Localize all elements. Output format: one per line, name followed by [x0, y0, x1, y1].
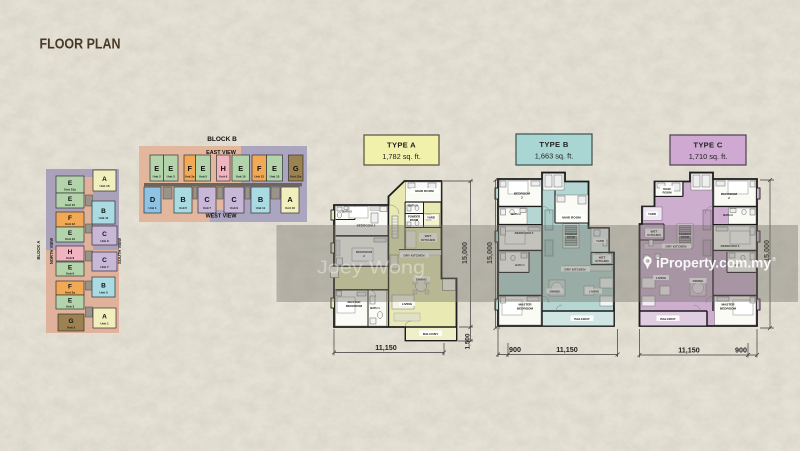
svg-text:TYPE A: TYPE A	[387, 141, 416, 150]
svg-text:E: E	[68, 180, 73, 187]
svg-text:YARD: YARD	[648, 212, 656, 216]
svg-text:MAID ROOM: MAID ROOM	[562, 216, 581, 220]
svg-text:H: H	[68, 249, 73, 256]
svg-text:C: C	[102, 231, 107, 238]
svg-text:900: 900	[509, 345, 521, 354]
svg-text:B: B	[258, 195, 263, 204]
svg-text:F: F	[257, 164, 262, 173]
svg-text:Unit 10: Unit 10	[236, 175, 246, 179]
svg-text:E: E	[201, 164, 206, 173]
svg-text:BALCONY: BALCONY	[574, 317, 590, 321]
svg-text:Unit 12: Unit 12	[254, 175, 264, 179]
svg-text:Unit 11: Unit 11	[99, 216, 109, 220]
svg-text:E: E	[154, 164, 159, 173]
svg-text:11,150: 11,150	[678, 346, 700, 355]
svg-text:WEST VIEW: WEST VIEW	[206, 214, 238, 220]
svg-text:Unit 1: Unit 1	[148, 206, 156, 210]
svg-text:1,500: 1,500	[465, 333, 472, 349]
svg-text:C: C	[204, 195, 210, 204]
svg-text:F: F	[68, 215, 72, 222]
svg-text:Unit 15a: Unit 15a	[64, 188, 76, 192]
svg-text:TYPE B: TYPE B	[539, 140, 568, 149]
svg-text:A: A	[102, 176, 107, 183]
svg-text:Unit 16: Unit 16	[99, 184, 109, 188]
svg-text:Unit 9: Unit 9	[230, 206, 238, 210]
svg-text:BATH 1: BATH 1	[370, 306, 380, 310]
svg-text:E: E	[238, 164, 243, 173]
svg-text:Unit 5: Unit 5	[199, 175, 207, 179]
svg-text:POWDER: POWDER	[408, 215, 420, 219]
svg-text:11,150: 11,150	[375, 343, 397, 352]
svg-text:NORTH VIEW: NORTH VIEW	[49, 238, 54, 264]
svg-text:E: E	[272, 164, 277, 173]
svg-text:Unit 5: Unit 5	[99, 291, 108, 295]
svg-text:E: E	[68, 298, 73, 305]
svg-text:Unit 5: Unit 5	[179, 206, 187, 210]
svg-text:G: G	[68, 318, 73, 325]
svg-text:BEDROOM: BEDROOM	[517, 307, 534, 311]
svg-text:Unit 10: Unit 10	[65, 237, 75, 241]
svg-text:Unit 15a: Unit 15a	[290, 175, 302, 179]
svg-text:BLOCK A: BLOCK A	[36, 241, 41, 260]
svg-text:Unit 3: Unit 3	[167, 175, 175, 179]
svg-text:BEDROOM: BEDROOM	[346, 304, 363, 308]
svg-text:Unit 11: Unit 11	[256, 206, 266, 210]
svg-text:iProperty.com.my: iProperty.com.my	[656, 255, 771, 271]
svg-text:BATH 2: BATH 2	[723, 213, 733, 217]
svg-text:H: H	[221, 164, 226, 173]
svg-text:FLOOR PLAN: FLOOR PLAN	[40, 36, 121, 53]
svg-text:BLOCK B: BLOCK B	[207, 136, 237, 143]
svg-text:F: F	[68, 284, 72, 291]
svg-text:®: ®	[772, 256, 776, 263]
svg-text:ROOM: ROOM	[410, 218, 419, 222]
svg-text:E: E	[68, 230, 73, 237]
svg-text:1,782 sq. ft.: 1,782 sq. ft.	[382, 152, 421, 161]
svg-text:BALCONY: BALCONY	[423, 332, 439, 336]
svg-text:Unit 15: Unit 15	[270, 175, 280, 179]
svg-text:TYPE C: TYPE C	[693, 141, 722, 150]
svg-text:C: C	[102, 257, 107, 264]
svg-text:E: E	[68, 265, 73, 272]
svg-text:Unit 3a: Unit 3a	[185, 175, 195, 179]
svg-text:LIVING: LIVING	[402, 302, 413, 306]
svg-text:Unit 12: Unit 12	[65, 222, 75, 226]
svg-text:B: B	[180, 195, 185, 204]
svg-text:F: F	[187, 164, 192, 173]
svg-text:Unit 16: Unit 16	[285, 206, 295, 210]
svg-text:BATH 5: BATH 5	[408, 204, 418, 208]
svg-text:E: E	[168, 164, 173, 173]
svg-text:2: 2	[521, 196, 523, 200]
svg-text:1,663 sq. ft.: 1,663 sq. ft.	[535, 152, 574, 161]
svg-text:BATH 2: BATH 2	[342, 210, 352, 214]
svg-text:E: E	[68, 196, 73, 203]
svg-text:1,710 sq. ft.: 1,710 sq. ft.	[689, 152, 728, 161]
svg-text:ROOM: ROOM	[663, 191, 673, 195]
svg-text:YARD: YARD	[427, 216, 435, 220]
svg-text:MAID ROOM: MAID ROOM	[415, 189, 434, 193]
svg-text:BEDROOM: BEDROOM	[720, 307, 737, 311]
svg-text:BATH 2: BATH 2	[511, 212, 521, 216]
svg-text:Unit 15: Unit 15	[65, 203, 75, 207]
svg-text:Unit 3a: Unit 3a	[65, 291, 75, 295]
svg-text:B: B	[101, 283, 106, 290]
svg-text:C: C	[231, 195, 237, 204]
svg-text:Joey Wong: Joey Wong	[317, 258, 425, 278]
svg-text:BALCONY: BALCONY	[660, 317, 676, 321]
svg-text:D: D	[150, 195, 156, 204]
svg-text:Unit 7: Unit 7	[100, 265, 109, 269]
svg-text:Unit 7: Unit 7	[203, 206, 211, 210]
svg-text:Unit 1: Unit 1	[100, 322, 109, 326]
svg-text:B: B	[101, 208, 106, 215]
svg-text:Unit 9: Unit 9	[100, 239, 109, 243]
svg-text:2: 2	[728, 196, 730, 200]
svg-text:Unit 3: Unit 3	[66, 305, 75, 309]
svg-text:G: G	[293, 164, 299, 173]
svg-text:A: A	[287, 195, 293, 204]
svg-text:Unit 2: Unit 2	[67, 326, 76, 330]
svg-text:900: 900	[735, 346, 747, 355]
svg-text:Unit 2: Unit 2	[153, 175, 161, 179]
svg-text:SOUTH VIEW: SOUTH VIEW	[117, 238, 122, 264]
svg-text:Unit 6: Unit 6	[66, 272, 75, 276]
svg-text:Unit 8: Unit 8	[66, 256, 75, 260]
svg-text:11,150: 11,150	[556, 345, 578, 354]
svg-text:A: A	[102, 314, 107, 321]
svg-text:Unit 6: Unit 6	[219, 175, 227, 179]
